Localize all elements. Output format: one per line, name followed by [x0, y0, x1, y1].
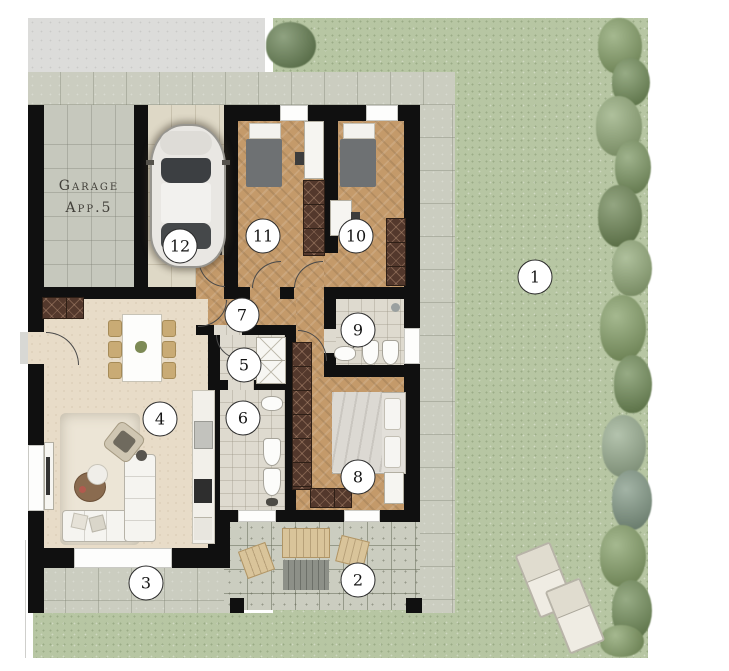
bush — [600, 525, 646, 587]
wall — [324, 365, 404, 377]
car-mirror — [222, 160, 230, 165]
bidet — [382, 340, 399, 365]
carport-door-opening — [148, 105, 224, 121]
door-opening — [294, 287, 324, 299]
bush — [614, 355, 652, 413]
wardrobe — [42, 297, 84, 319]
room-marker-12: 12 — [163, 229, 198, 264]
bush — [600, 625, 644, 657]
wardrobe — [292, 342, 312, 490]
window-living-terrace — [74, 548, 172, 568]
outdoor-rug — [283, 560, 329, 590]
property-boundary-line — [25, 540, 26, 658]
wall — [324, 299, 336, 329]
bush — [612, 470, 652, 530]
toilet — [263, 438, 281, 466]
tv — [46, 457, 50, 495]
bed-pillow — [343, 123, 375, 139]
bed-pillow — [384, 398, 401, 430]
kitchen-sink — [194, 421, 213, 449]
window — [366, 105, 398, 121]
kitchen-counter — [192, 390, 215, 544]
double-bed — [332, 392, 404, 472]
window — [344, 510, 380, 522]
bed-blanket — [246, 139, 282, 187]
decor-sphere — [87, 464, 108, 485]
bathroom-sink — [261, 396, 283, 411]
bidet — [263, 468, 281, 496]
bush — [598, 185, 642, 247]
room-marker-11: 11 — [246, 219, 281, 254]
dining-chair — [108, 320, 122, 337]
bathroom-sink — [334, 346, 356, 361]
garage-label: Garage App.5 — [40, 176, 138, 219]
car-mirror — [146, 160, 154, 165]
flowers — [79, 486, 86, 493]
desk — [304, 121, 324, 179]
window — [280, 105, 308, 121]
room-marker-4: 4 — [143, 402, 178, 437]
bed-pillow — [384, 436, 401, 468]
wall — [220, 380, 228, 390]
bed-blanket — [340, 139, 376, 187]
sofa-section — [124, 454, 156, 542]
car-roof — [161, 183, 211, 223]
room-marker-2: 2 — [341, 563, 376, 598]
bush — [600, 295, 646, 361]
patio-post — [406, 598, 422, 613]
window — [238, 510, 276, 522]
washing-machine — [256, 337, 286, 361]
room-marker-9: 9 — [341, 313, 376, 348]
floor-plan: Garage App.5 — [0, 0, 729, 671]
garage-door-opening — [44, 105, 134, 121]
wall — [280, 287, 294, 299]
shower-head — [391, 303, 400, 312]
car-windshield — [161, 158, 211, 183]
wardrobe — [310, 488, 352, 508]
wall — [324, 287, 404, 299]
garage-label-line2: App.5 — [40, 198, 138, 220]
outdoor-bench — [282, 528, 330, 558]
desk-chair — [295, 152, 304, 165]
wall — [224, 121, 238, 287]
dining-chair — [108, 362, 122, 379]
tv-sideboard — [44, 442, 54, 510]
bath-stool — [266, 498, 278, 506]
window — [404, 328, 420, 364]
car-hood — [160, 131, 212, 155]
entrance-door-opening — [28, 332, 44, 364]
wardrobe — [303, 180, 325, 256]
bush — [266, 22, 316, 68]
driveway — [28, 18, 265, 73]
window — [28, 445, 44, 511]
sofa-pillow — [71, 513, 89, 531]
walkway-east-apron — [420, 105, 455, 613]
wall — [224, 287, 238, 299]
room-marker-3: 3 — [129, 566, 164, 601]
fridge — [194, 517, 212, 540]
single-bed — [340, 121, 376, 187]
door-opening — [250, 287, 280, 299]
room-marker-1: 1 — [518, 260, 553, 295]
dining-chair — [108, 341, 122, 358]
dining-chair — [162, 341, 176, 358]
armchair-seat — [112, 429, 137, 453]
room-marker-10: 10 — [339, 219, 374, 254]
dining-chair — [162, 362, 176, 379]
wall — [404, 121, 420, 522]
wardrobe — [386, 218, 406, 286]
garage-label-line1: Garage — [40, 176, 138, 198]
desk — [384, 472, 404, 504]
entrance-step — [20, 332, 28, 364]
single-bed — [246, 121, 282, 187]
bed-pillow — [249, 123, 281, 139]
bush — [602, 415, 646, 477]
room-marker-7: 7 — [225, 298, 260, 333]
dining-chair — [162, 320, 176, 337]
bush — [612, 240, 652, 296]
room-marker-6: 6 — [226, 401, 261, 436]
side-table — [136, 450, 147, 461]
room-marker-5: 5 — [227, 348, 262, 383]
room-marker-8: 8 — [341, 460, 376, 495]
cooktop — [194, 479, 212, 503]
walkway-north — [28, 72, 455, 105]
patio-post — [230, 598, 244, 613]
